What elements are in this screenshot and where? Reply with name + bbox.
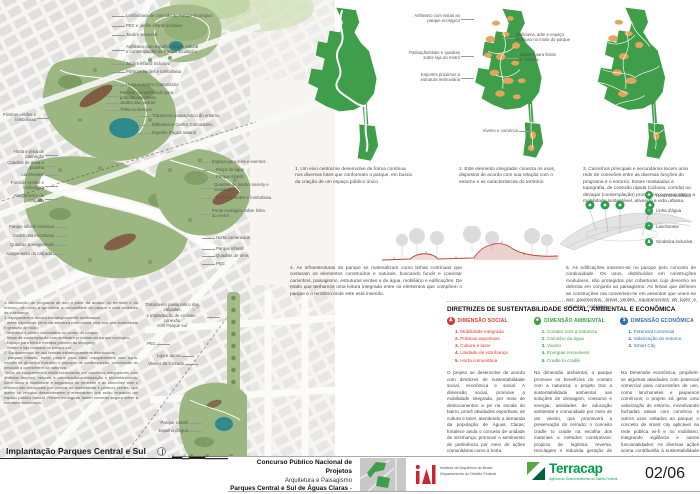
iab-text: Instituto de Arquitetos do Brasil Depart…	[440, 466, 520, 477]
leader-line	[502, 38, 515, 39]
leader-line	[202, 256, 215, 257]
leader-line	[181, 356, 194, 357]
map-callout: Anfiteatro com espelho d'água natural e …	[126, 44, 218, 55]
map-callout: Pórticos verdes e lombofaixa	[126, 69, 206, 74]
leader-line	[45, 155, 58, 156]
leader-line	[106, 110, 119, 111]
leader-line	[202, 249, 215, 250]
leader-line	[202, 238, 215, 239]
iab-logo-icon	[415, 461, 437, 485]
leader-line	[198, 214, 211, 215]
leader-line	[189, 423, 202, 424]
map-callout: Alargamento da calçada	[4, 193, 44, 204]
iab-dept: Departamento do Distrito Federal	[440, 472, 520, 478]
map-callout: Lombofaixa de conexão ao Parque Ecológic…	[126, 13, 218, 18]
map-callout: Jardim das esculturas	[4, 233, 54, 238]
map-callout: Quadras de futebol society e vestiários	[214, 182, 292, 193]
map-callout: Parque infantil	[216, 246, 266, 251]
terracap-text: Terracap Agência de Desenvolvimento do D…	[549, 461, 617, 481]
map-callout: Quadras poliesportivas	[2, 242, 54, 247]
map-callout: Pórticos verdes e lombofaixa	[2, 112, 36, 123]
map-callout: Jardim infantil inclusivo	[126, 61, 196, 66]
leader-line	[461, 78, 474, 79]
location-thumbnail	[360, 458, 406, 491]
map-callout: Espelho d'água natural	[152, 130, 222, 135]
leader-line	[461, 56, 474, 57]
leader-line	[112, 64, 125, 65]
leader-line	[189, 431, 202, 432]
map-callout: Horta e Centro Comunitário	[126, 82, 206, 87]
leader-line	[112, 26, 125, 27]
leader-line	[53, 254, 66, 255]
map-callout: Quadras de tênis	[216, 253, 266, 258]
leader-line	[202, 198, 215, 199]
leader-line	[138, 116, 151, 117]
project-name-bold: Parques Central e Sul de Águas Claras	[230, 485, 348, 492]
map-callout: Jardim sensorial	[126, 32, 186, 37]
map-callout: Trilha no bosque	[120, 107, 180, 112]
diagram-callout: Viveiro e comércio	[474, 128, 518, 133]
diagram-callout: Esportes próximos a estrutura metroviári…	[400, 72, 460, 83]
leader-line	[157, 344, 170, 345]
competition-board: 1. Um eixo central se desenvolve de form…	[0, 0, 700, 494]
terracap-logo-icon	[527, 462, 545, 480]
terracap-tagline: Agência de Desenvolvimento do Distrito F…	[549, 477, 617, 481]
leader-line	[55, 236, 68, 237]
map-callout: Parque infantil	[144, 420, 188, 425]
map-callout: Ponte ecológica sobre linha do metrô	[212, 208, 282, 219]
leader-line	[112, 72, 125, 73]
diagram-callout: Patinação/skate e quadras sobre laje do …	[394, 50, 460, 61]
diagram-callout: Biblioteca, adm e espaço multiuso no mio…	[516, 32, 580, 43]
leader-line	[45, 166, 58, 167]
diagram-callout: Espaço para feiras e eventos	[520, 52, 570, 63]
map-callout: Biblioteca e Centro Comunitário	[152, 122, 232, 127]
map-callout: Alargamento da calçada	[0, 251, 52, 256]
map-callout: PEC	[216, 261, 246, 266]
map-callout: Espelho d'água	[142, 428, 188, 433]
leader-line	[198, 162, 211, 163]
project-name: Parques Central e Sul de Águas Claras - …	[230, 485, 352, 494]
leader-line	[202, 177, 215, 178]
iab-logo	[415, 461, 437, 490]
leader-line	[207, 317, 220, 318]
leader-line	[106, 103, 119, 104]
leader-line	[55, 245, 68, 246]
map-callout: Quadras de areia e prainha	[4, 160, 44, 171]
map-callout: Horta comunitária	[216, 235, 271, 240]
terracap-wordmark: Terracap	[549, 461, 617, 476]
leader-line	[45, 199, 58, 200]
leader-line	[461, 19, 474, 20]
leader-line	[519, 131, 532, 132]
leader-line	[45, 175, 58, 176]
leader-line	[506, 58, 519, 59]
map-callout: PEC e jardim infantil inclusivo	[126, 23, 206, 28]
map-callout: Espaço para feira e eventos	[212, 159, 284, 164]
sheet-number: 02/06	[645, 465, 685, 483]
diagram-callout: Anfiteatro com vistas ao parque ecológic…	[398, 13, 460, 24]
map-callout: Parque infantil inclusivo	[2, 224, 54, 229]
leader-line	[112, 50, 125, 51]
leader-line	[112, 35, 125, 36]
map-callout: Jardim das pedras	[120, 100, 180, 105]
map-callout: Pórticos verdes e lombofaixa	[2, 180, 44, 191]
leader-line	[112, 85, 125, 86]
leader-line	[55, 227, 68, 228]
competition-title-block: Concurso Público Nacional de Projetos Ar…	[230, 459, 352, 494]
map-callout: Loja e apoio	[140, 353, 180, 358]
annotation-layer: Lombofaixa de conexão ao Parque Ecológic…	[0, 0, 700, 494]
leader-line	[200, 188, 213, 189]
leader-line	[185, 364, 198, 365]
leader-line	[37, 118, 50, 119]
leader-line	[138, 125, 151, 126]
competition-title: Concurso Público Nacional de Projetos	[230, 459, 352, 477]
terracap-logo	[527, 462, 545, 485]
leader-line	[202, 264, 215, 265]
map-callout: R. Acácia	[199, 431, 221, 448]
map-callout: Pórticos verdes e lombofaixa	[216, 195, 292, 200]
leader-line	[106, 96, 119, 97]
map-callout: Tratamento paisagístico do entorno	[152, 113, 238, 118]
leader-line	[202, 170, 215, 171]
map-callout: Lanchonete	[8, 172, 44, 177]
map-callout: Praça da água	[216, 167, 266, 172]
map-callout: PEC	[130, 341, 156, 346]
map-callout: Parque infantil	[216, 174, 266, 179]
leader-line	[45, 186, 58, 187]
map-callout: Viveiro do Cerrado	[136, 361, 184, 366]
leader-line	[138, 133, 151, 134]
map-callout: Horta e pista de patinação	[2, 149, 44, 160]
leader-line	[112, 16, 125, 17]
competition-subtitle: Arquitetura e Paisagismo	[230, 477, 352, 485]
